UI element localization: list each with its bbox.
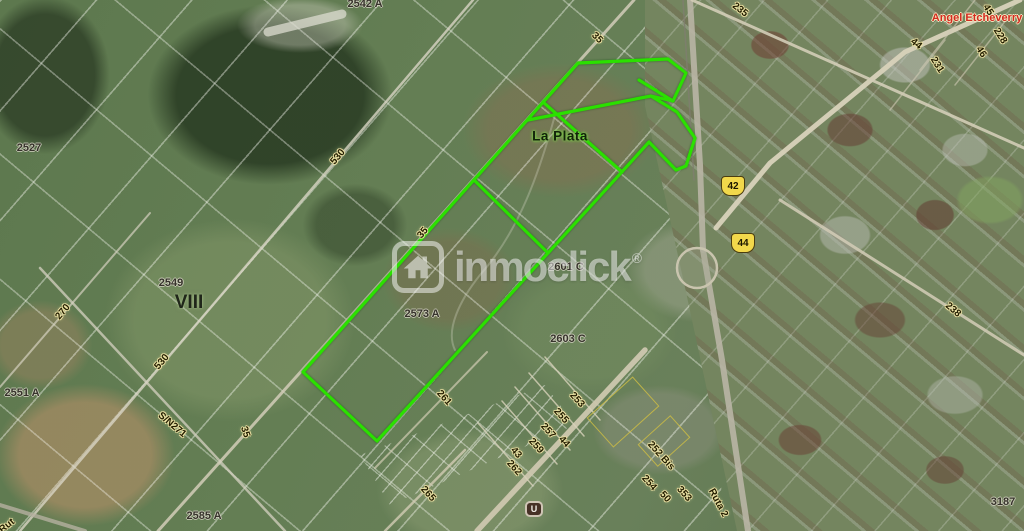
road-label: 44	[556, 434, 572, 450]
road-label: 43	[508, 445, 524, 461]
parcel-label: 3187	[991, 496, 1015, 508]
road-label: 255	[551, 406, 570, 426]
road-label: 231	[928, 55, 946, 75]
road-label: 45	[980, 2, 995, 17]
city-label: La Plata	[532, 129, 588, 144]
road-label: 46	[973, 44, 988, 59]
road-label: 253	[567, 390, 586, 410]
parcel-label: 2549	[159, 277, 183, 289]
road-label: 238	[943, 300, 963, 319]
road-label: Rut	[0, 517, 17, 531]
road-label: 35	[238, 425, 252, 439]
route-shield: 44	[731, 233, 755, 253]
road-label: 530	[152, 352, 171, 372]
labels-layer: 2542 A252725492551 A2573 A2601 C2603 C25…	[0, 0, 1024, 531]
parcel-label: 2542 A	[347, 0, 382, 10]
road-label: 228	[991, 26, 1009, 46]
road-label: 257	[538, 421, 557, 441]
satellite-map-viewport[interactable]: 2542 A252725492551 A2573 A2601 C2603 C25…	[0, 0, 1024, 531]
u-marker[interactable]: U	[525, 501, 543, 517]
parcel-label: 2551 A	[4, 387, 39, 399]
road-label: S/N271	[156, 410, 189, 440]
road-label: 530	[328, 147, 347, 167]
parcel-label: 2573 A	[404, 308, 439, 320]
road-label: Ruta 2	[706, 487, 730, 519]
road-label: 254	[639, 473, 658, 493]
road-label: 44	[908, 36, 924, 52]
road-label: 353	[674, 484, 693, 504]
road-label: 265	[418, 484, 437, 504]
parcel-label: 2527	[17, 142, 41, 154]
road-label: 35	[415, 225, 431, 241]
road-label: 262	[504, 458, 523, 478]
road-label: 235	[730, 1, 750, 20]
road-label: 261	[434, 388, 453, 408]
district-label: VIII	[175, 292, 204, 314]
parcel-label: 2601 C	[548, 261, 583, 273]
road-label: 270	[53, 302, 72, 322]
road-label: 252 Bis	[645, 439, 677, 472]
road-label: 35	[589, 30, 605, 46]
road-label: 50	[657, 489, 673, 505]
parcel-label: 2585 A	[186, 510, 221, 522]
route-shield: 42	[721, 176, 745, 196]
road-label: 259	[526, 436, 545, 456]
town-label: Angel Etcheverry	[932, 12, 1022, 24]
parcel-label: 2603 C	[550, 333, 585, 345]
